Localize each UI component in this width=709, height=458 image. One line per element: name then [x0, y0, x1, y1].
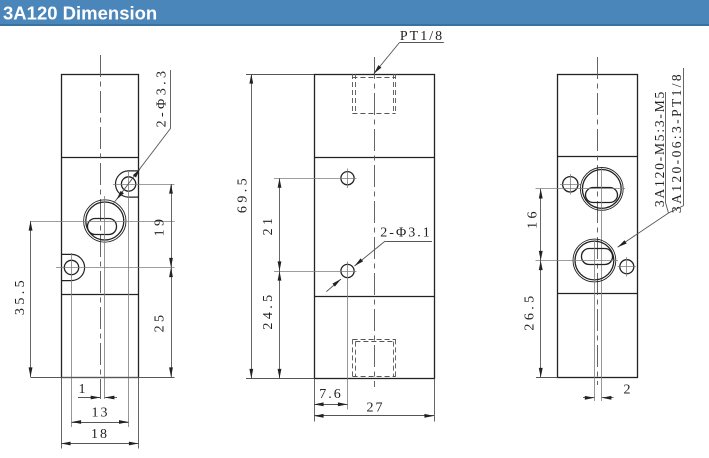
svg-text:3A120-06:3-PT1/8: 3A120-06:3-PT1/8: [669, 72, 684, 213]
svg-text:69.5: 69.5: [236, 175, 251, 213]
svg-text:35.5: 35.5: [13, 277, 28, 315]
svg-text:2-Φ3.1: 2-Φ3.1: [380, 226, 431, 241]
svg-text:24.5: 24.5: [261, 291, 276, 329]
svg-text:16: 16: [526, 208, 541, 229]
svg-text:3A120 Dimension: 3A120 Dimension: [3, 3, 157, 24]
svg-text:PT1/8: PT1/8: [400, 29, 444, 44]
svg-text:19: 19: [153, 216, 168, 237]
svg-text:3A120-M5:3-M5: 3A120-M5:3-M5: [652, 90, 667, 207]
svg-text:1: 1: [79, 382, 88, 397]
svg-text:21: 21: [261, 215, 276, 236]
svg-text:13: 13: [92, 406, 110, 421]
svg-text:18: 18: [91, 427, 109, 442]
svg-text:26.5: 26.5: [523, 292, 538, 330]
svg-text:2: 2: [624, 383, 633, 398]
svg-text:2-Φ3.3: 2-Φ3.3: [155, 68, 170, 128]
svg-text:25: 25: [153, 312, 168, 333]
svg-text:27: 27: [367, 401, 385, 416]
svg-text:7.6: 7.6: [319, 387, 343, 402]
